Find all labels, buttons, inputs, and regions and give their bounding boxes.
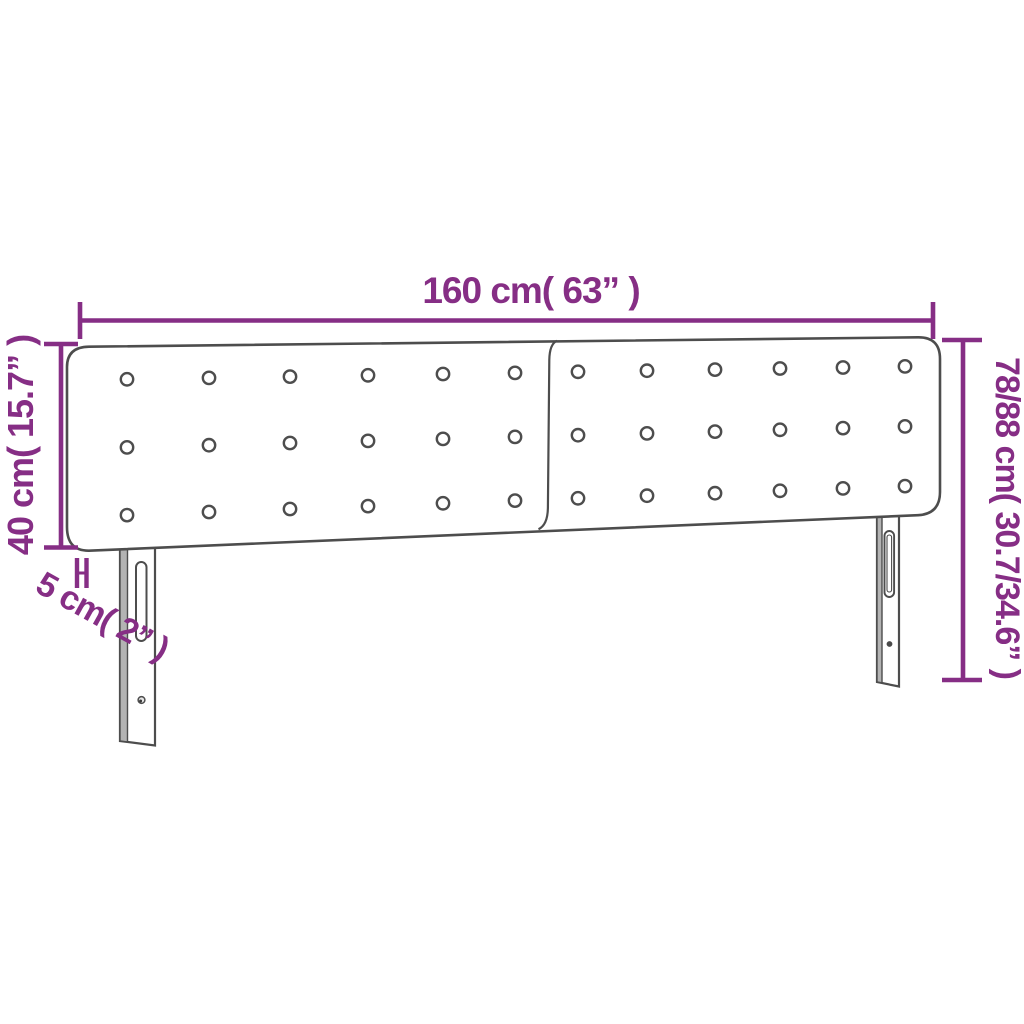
right-leg-screw xyxy=(887,641,893,647)
tufting-button xyxy=(284,437,296,449)
tufting-button xyxy=(774,485,786,497)
tufting-button xyxy=(121,373,133,385)
tufting-button xyxy=(899,360,911,372)
tufting-button xyxy=(203,506,215,518)
tufting-button xyxy=(509,494,521,506)
tufting-button xyxy=(121,441,133,453)
tufting-button xyxy=(641,427,653,439)
tufting-button xyxy=(203,439,215,451)
right-leg-slot xyxy=(885,531,895,597)
tufting-button xyxy=(509,431,521,443)
tufting-button xyxy=(837,361,849,373)
left-leg-screw-dot xyxy=(139,700,142,703)
tufting-button xyxy=(837,482,849,494)
tufting-button xyxy=(899,480,911,492)
tufting-button xyxy=(709,425,721,437)
tufting-button xyxy=(837,422,849,434)
headboard-dimension-diagram: 160 cm( 63” ) 40 cm( 15.7” ) 5 cm( 2” ) … xyxy=(0,0,1024,1024)
tufting-button xyxy=(362,369,374,381)
tufting-button xyxy=(709,363,721,375)
headboard-panel-outline xyxy=(67,337,940,550)
tufting-button xyxy=(509,367,521,379)
right-leg-shade xyxy=(877,512,882,683)
width-dimension-label: 160 cm( 63” ) xyxy=(422,270,639,311)
tufting-button xyxy=(437,368,449,380)
tufting-button xyxy=(774,362,786,374)
width-dimension: 160 cm( 63” ) xyxy=(80,270,933,339)
tufting-button xyxy=(437,433,449,445)
tufting-button xyxy=(641,365,653,377)
tufting-button xyxy=(572,366,584,378)
tufting-button xyxy=(899,420,911,432)
tufting-button xyxy=(572,429,584,441)
panel-height-dimension-label: 40 cm( 15.7” ) xyxy=(0,335,41,555)
tufting-button xyxy=(709,487,721,499)
tufting-button xyxy=(362,435,374,447)
tufting-button xyxy=(641,490,653,502)
tufting-button xyxy=(121,509,133,521)
tufting-button xyxy=(572,492,584,504)
total-height-dimension-label: 78/88 cm( 30.7/34.6” ) xyxy=(988,357,1024,679)
tufting-button xyxy=(284,503,296,515)
right-leg xyxy=(877,511,899,687)
tufting-button xyxy=(203,372,215,384)
total-height-dimension: 78/88 cm( 30.7/34.6” ) xyxy=(942,340,1024,680)
tufting-button xyxy=(284,370,296,382)
diagram-canvas: 160 cm( 63” ) 40 cm( 15.7” ) 5 cm( 2” ) … xyxy=(0,0,1024,1024)
tufting-button xyxy=(774,424,786,436)
tufting-button xyxy=(437,497,449,509)
tufting-button xyxy=(362,500,374,512)
headboard xyxy=(67,337,940,745)
